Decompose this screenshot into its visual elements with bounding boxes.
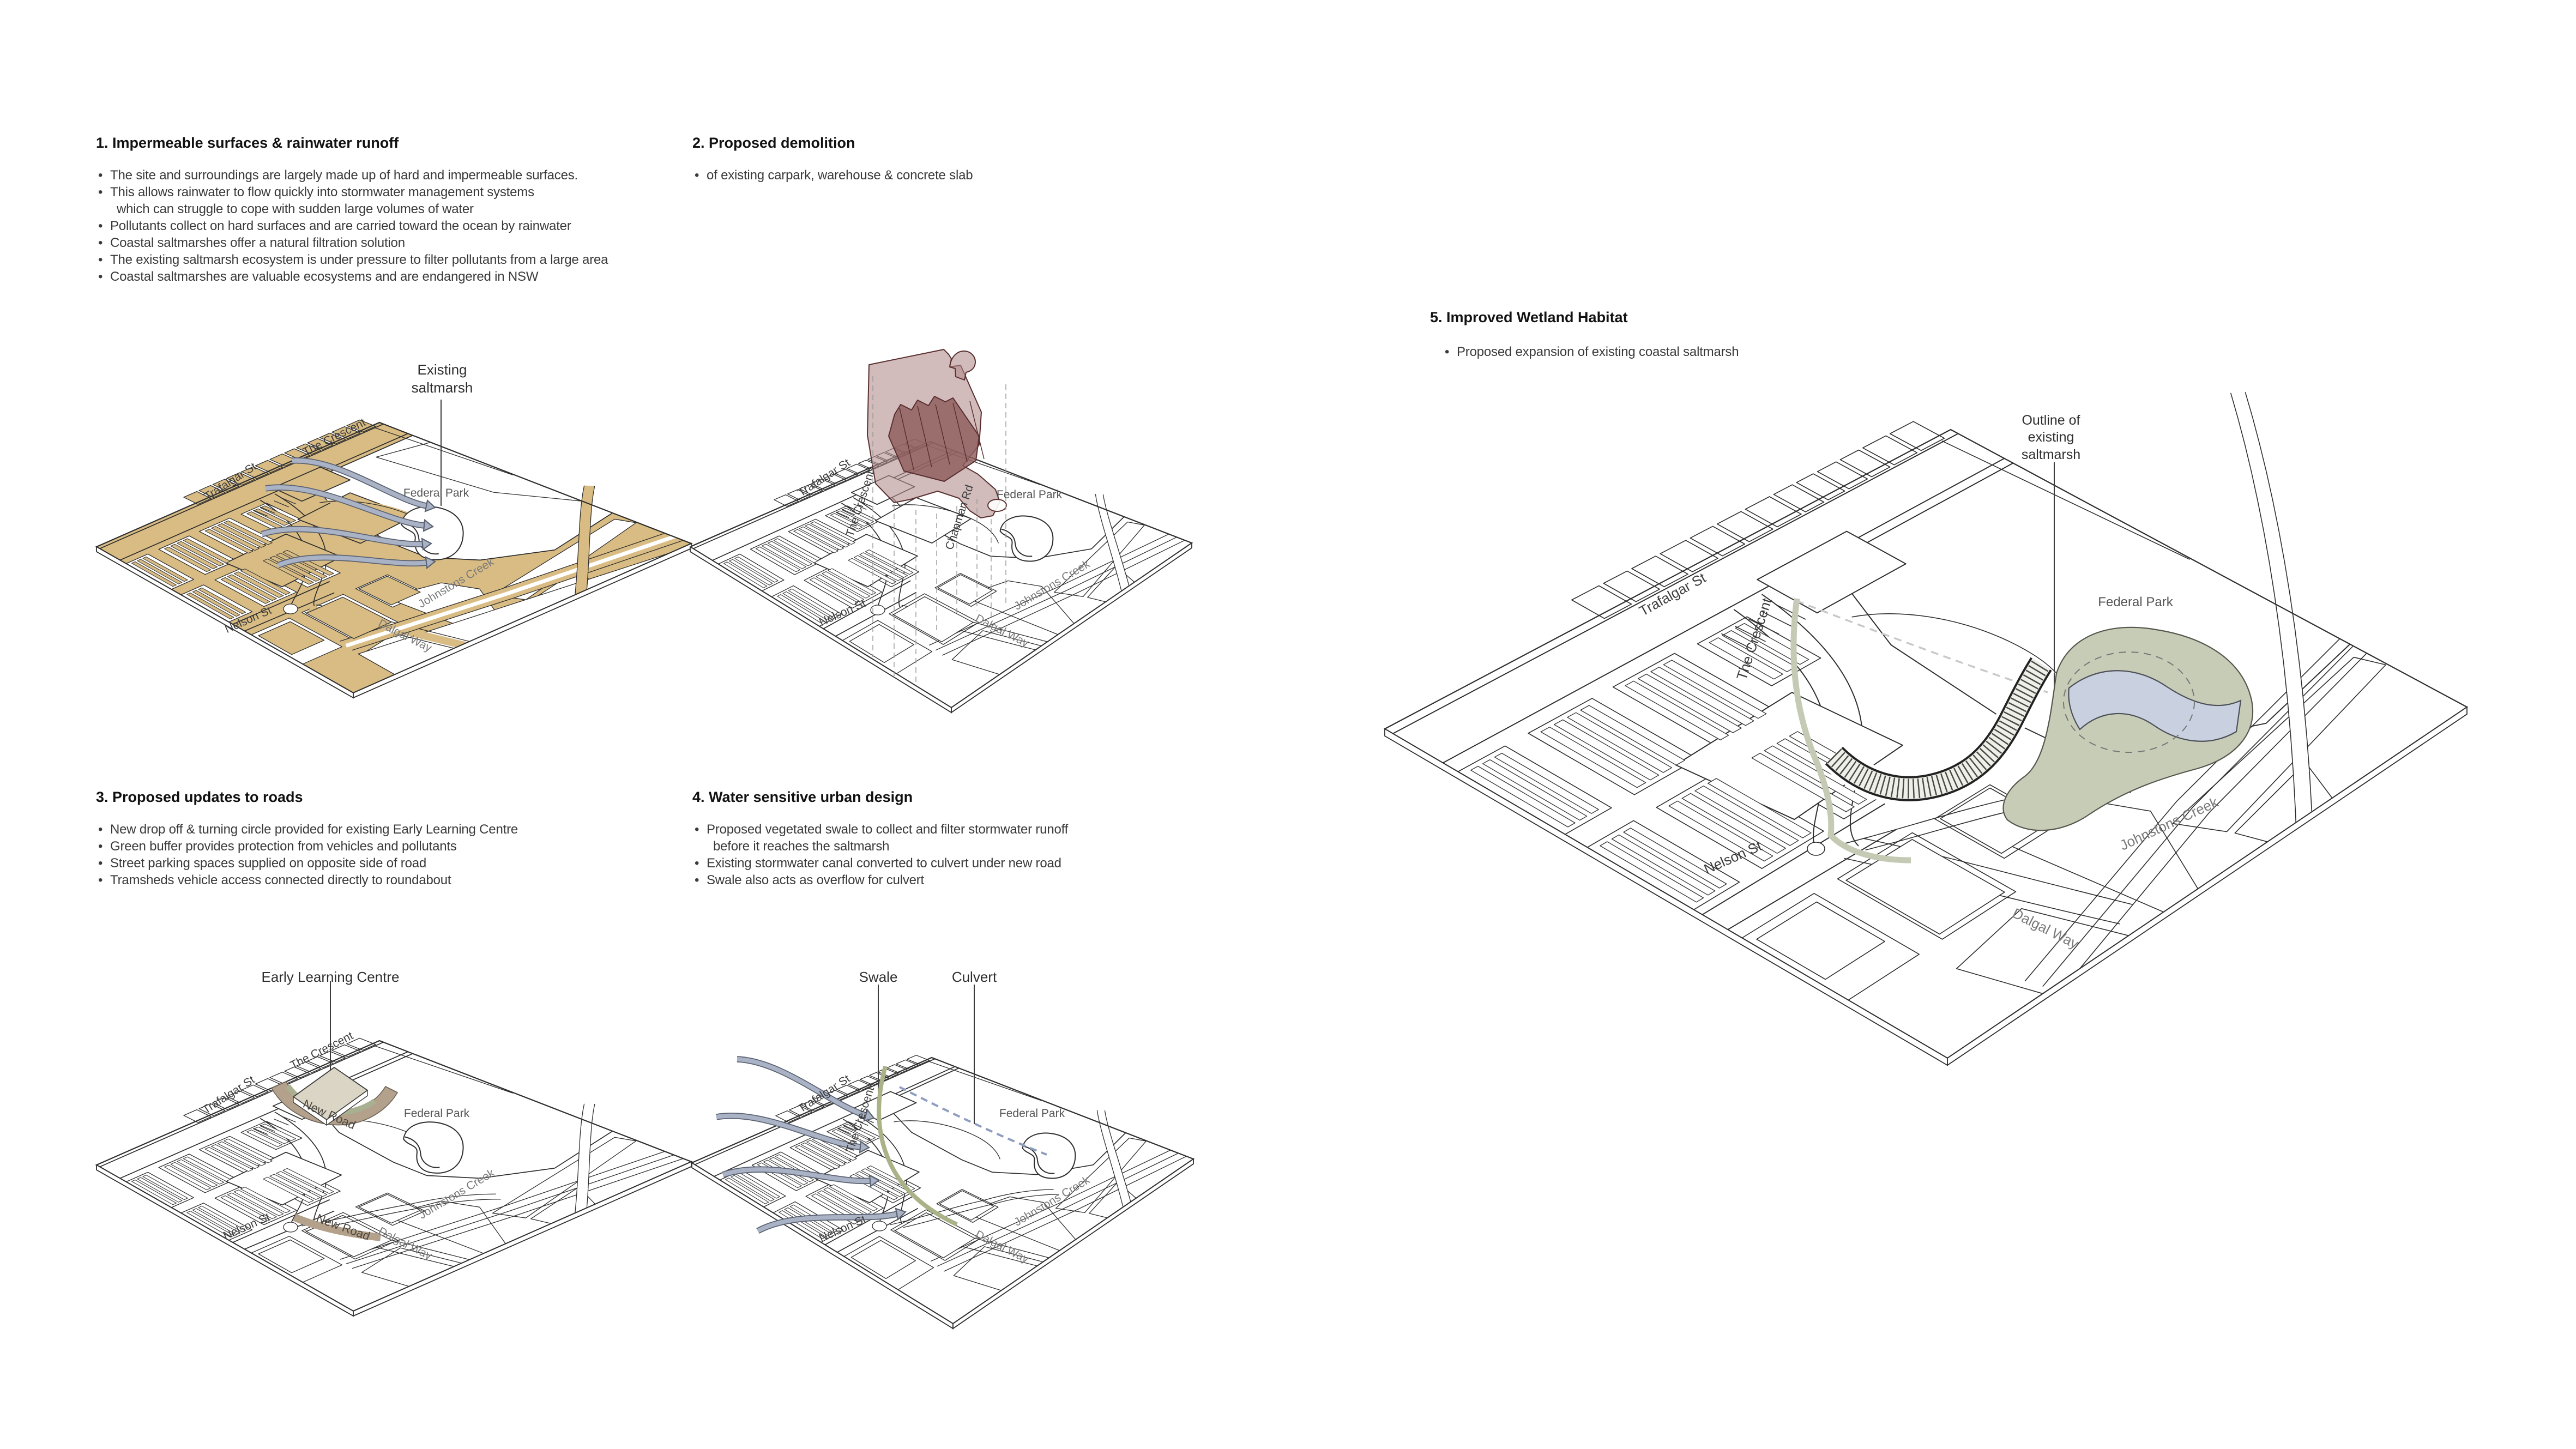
svg-text:Dalgal Way: Dalgal Way [973,1228,1031,1266]
svg-text:Trafalgar St: Trafalgar St [796,456,853,499]
svg-text:Johnstons Creek: Johnstons Creek [1012,1174,1092,1229]
svg-text:Dalgal Way: Dalgal Way [973,612,1031,650]
svg-text:Johnstons Creek: Johnstons Creek [2117,794,2221,854]
svg-text:Nelson St: Nelson St [817,597,868,629]
svg-text:Dalgal Way: Dalgal Way [376,1225,434,1263]
svg-text:Dalgal Way: Dalgal Way [2010,905,2081,952]
